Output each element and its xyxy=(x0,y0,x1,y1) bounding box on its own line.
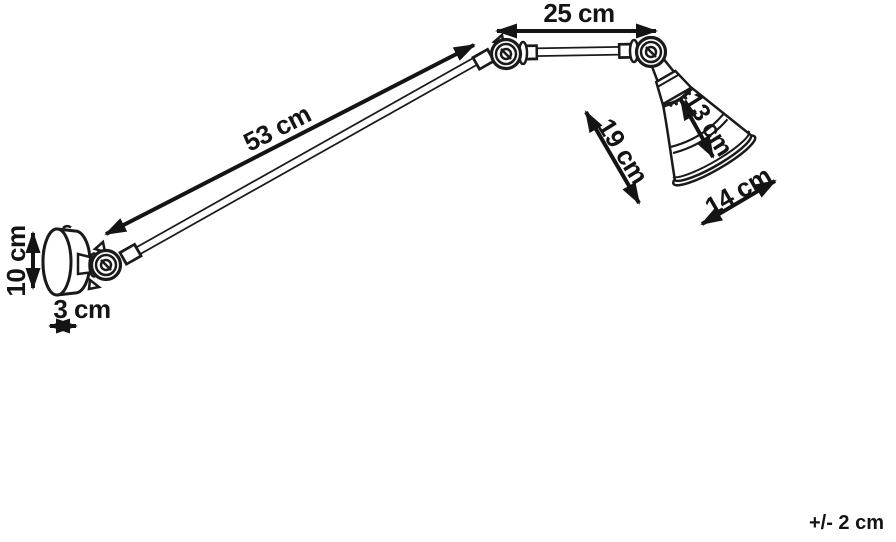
dim-wall-plate-depth-label: 3 cm xyxy=(53,294,110,324)
dim-upper-arm: 25 cm xyxy=(497,0,656,31)
dim-shade-depth: 19 cm xyxy=(586,112,655,203)
dim-wall-plate-diameter-label: 10 cm xyxy=(1,225,31,296)
dim-wall-plate-depth: 3 cm xyxy=(50,294,111,326)
dim-lower-arm-label: 53 cm xyxy=(238,98,315,157)
mount-top-nub xyxy=(63,226,71,228)
elbow-joint xyxy=(492,35,528,69)
head-joint xyxy=(630,38,666,67)
tolerance-note: +/- 2 cm xyxy=(809,512,884,534)
dim-lower-arm-arrow xyxy=(106,45,474,234)
wall-lamp-dimension-drawing: 25 cm 53 cm 10 cm 3 cm 19 cm 13 cm 14 cm… xyxy=(0,0,896,542)
dim-wall-plate-diameter: 10 cm xyxy=(1,225,33,296)
dim-lower-arm: 53 cm xyxy=(106,45,474,234)
dim-upper-arm-label: 25 cm xyxy=(543,0,614,28)
diagram-canvas: 25 cm 53 cm 10 cm 3 cm 19 cm 13 cm 14 cm… xyxy=(0,0,896,542)
dim-shade-depth-label: 19 cm xyxy=(591,113,654,189)
mount-front-face xyxy=(43,229,71,295)
lower-arm xyxy=(122,55,492,260)
upper-arm xyxy=(519,51,637,53)
